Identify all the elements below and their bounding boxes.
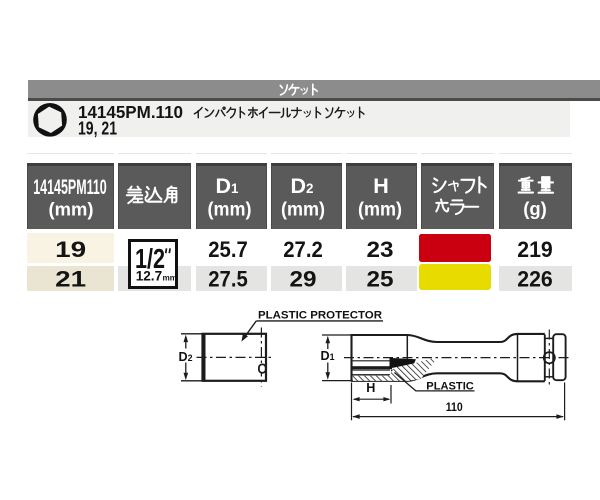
svg-text:(mm): (mm) <box>208 200 252 221</box>
svg-text:27.5: 27.5 <box>208 266 248 291</box>
svg-text:(g): (g) <box>523 198 547 219</box>
svg-text:H: H <box>373 174 389 198</box>
svg-text:D1: D1 <box>216 174 240 198</box>
svg-text:14145PM110: 14145PM110 <box>33 176 107 199</box>
svg-text:D1: D1 <box>321 349 335 363</box>
svg-text:19: 19 <box>55 237 86 262</box>
svg-text:D2: D2 <box>291 174 314 198</box>
svg-text:27.2: 27.2 <box>283 237 323 262</box>
svg-text:29: 29 <box>290 266 317 291</box>
svg-text:D2: D2 <box>179 350 193 364</box>
svg-text:25.7: 25.7 <box>208 237 248 262</box>
svg-text:(mm): (mm) <box>281 200 325 221</box>
svg-text:21: 21 <box>55 266 86 291</box>
svg-text:23: 23 <box>367 237 394 262</box>
svg-text:25: 25 <box>367 266 394 291</box>
svg-text:12.7mm: 12.7mm <box>136 268 177 283</box>
svg-text:19, 21: 19, 21 <box>78 119 117 139</box>
svg-text:(mm): (mm) <box>358 200 402 221</box>
svg-text:110: 110 <box>446 401 463 414</box>
svg-text:PLASTIC: PLASTIC <box>426 380 474 392</box>
svg-text:(mm): (mm) <box>49 199 94 220</box>
svg-text:219: 219 <box>517 237 553 262</box>
svg-text:PLASTIC PROTECTOR: PLASTIC PROTECTOR <box>258 309 382 321</box>
svg-text:226: 226 <box>517 266 553 291</box>
svg-text:H: H <box>366 381 375 395</box>
